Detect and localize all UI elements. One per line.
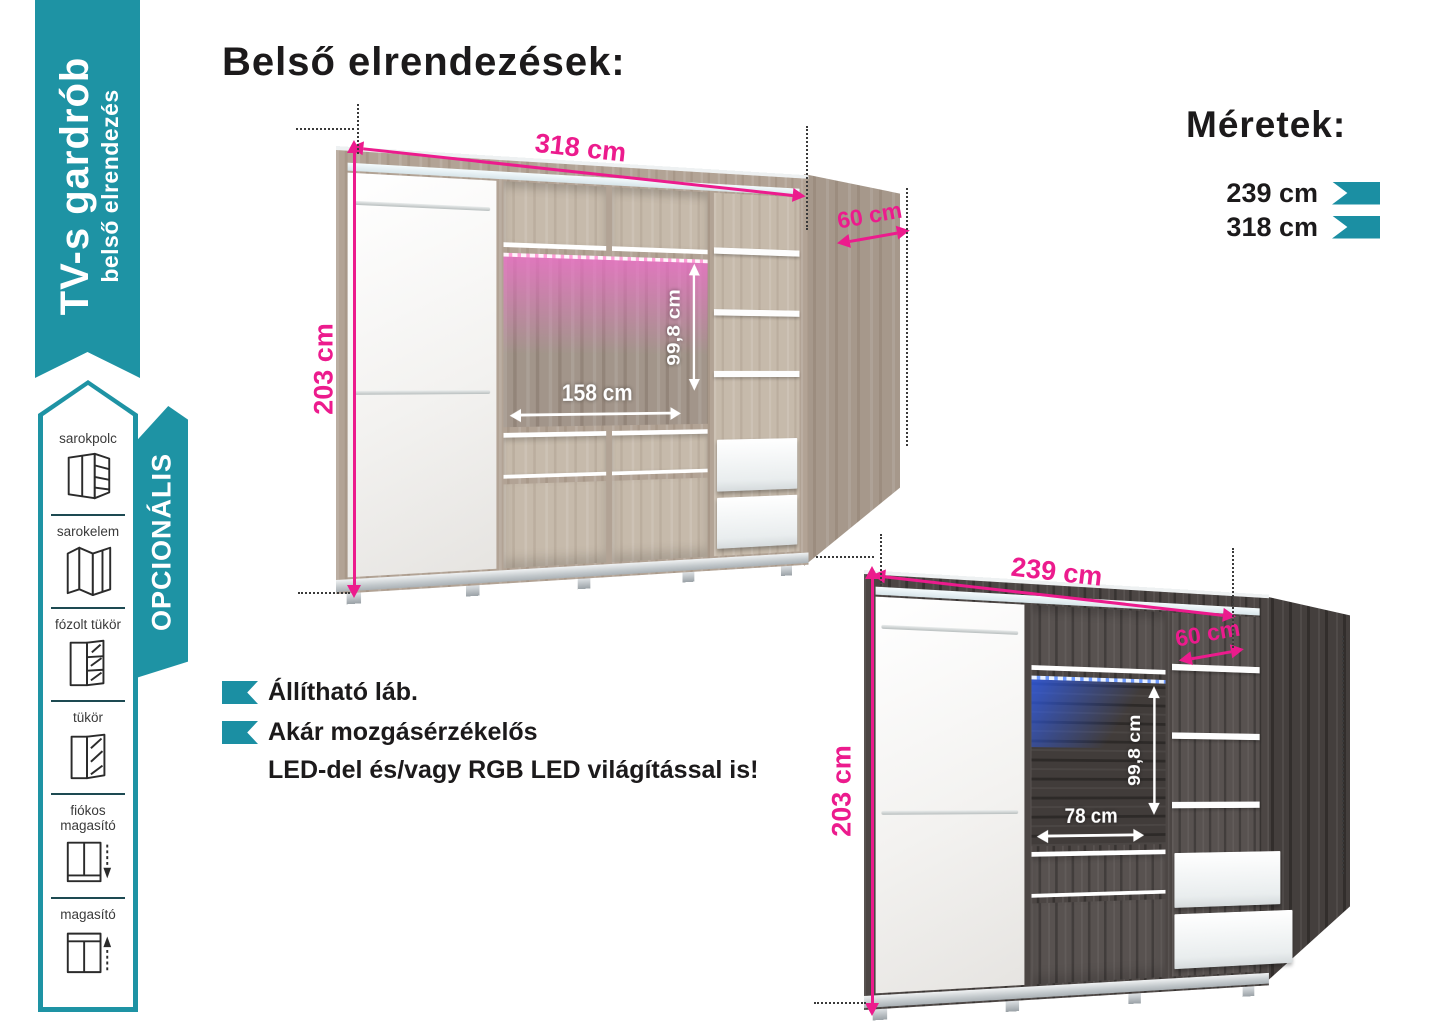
feature-text: Állítható láb. — [268, 678, 418, 707]
dim-tv-height: 99,8 cm — [665, 263, 700, 391]
hanging-rail — [882, 810, 1019, 815]
size-value: 239 cm — [1226, 178, 1318, 209]
wardrobe-239-diagram: 78 cm 99,8 cm — [864, 570, 1342, 1010]
optional-item-label: fózolt tükör — [43, 617, 133, 632]
open-cell — [612, 478, 708, 562]
top-cubbies — [503, 181, 708, 254]
opcionalis-ribbon: OPCIONÁLIS — [136, 406, 188, 678]
optional-item-magasito: magasító — [43, 905, 133, 980]
optional-panel: sarokpolc sarokelem fózolt tükör — [38, 380, 138, 1012]
optional-panel-inner: sarokpolc sarokelem fózolt tükör — [43, 385, 133, 1007]
drawer-open — [1174, 851, 1280, 908]
open-cell — [1031, 899, 1165, 985]
optional-item-label: tükör — [43, 710, 133, 725]
dotted-guide — [1342, 636, 1344, 874]
dotted-guide — [806, 126, 808, 230]
wardrobe-body: 158 cm 99,8 cm — [336, 146, 808, 594]
dim-height-318: 203 cm — [314, 140, 362, 598]
optional-item-fiokos-magasito: fiókos magasító — [43, 801, 133, 891]
dim-tv-width: 158 cm — [510, 380, 681, 423]
shelf-drawer-section — [714, 193, 799, 556]
optional-item-label: magasító — [43, 907, 133, 922]
cubby — [503, 181, 606, 250]
ribbon-subtitle: belső elrendezés — [97, 57, 123, 316]
shelf — [714, 309, 799, 317]
separator — [51, 897, 125, 899]
extension-icon — [59, 924, 117, 976]
dotted-guide — [1232, 548, 1234, 648]
optional-item-sarokelem: sarokelem — [43, 522, 133, 601]
feature-bullet-icon — [222, 721, 258, 744]
hanging-rail — [354, 390, 491, 395]
feature-row: Akár mozgásérzékelős — [222, 718, 538, 747]
dotted-guide — [357, 104, 359, 154]
opcionalis-label: OPCIONÁLIS — [147, 453, 178, 631]
optional-item-fozolt-tukor: fózolt tükör — [43, 615, 133, 694]
dim-height-239: 203 cm — [832, 566, 880, 1016]
cubby — [1031, 605, 1165, 674]
size-row: 318 cm — [1130, 214, 1380, 240]
hanging-section — [348, 173, 497, 578]
separator — [51, 793, 125, 795]
size-value: 318 cm — [1226, 212, 1318, 243]
feature-row: LED-del és/vagy RGB LED világítással is! — [268, 756, 758, 785]
corner-shelf-icon — [59, 448, 117, 504]
tv-section: 78 cm 99,8 cm — [1031, 605, 1165, 985]
open-cell — [503, 481, 606, 568]
optional-item-sarokpolc: sarokpolc — [43, 429, 133, 508]
optional-item-label: sarokpolc — [43, 431, 133, 446]
separator — [51, 514, 125, 516]
page-title: Belső elrendezések: — [222, 40, 626, 85]
mirror-icon — [59, 727, 117, 783]
feature-row: Állítható láb. — [222, 678, 418, 707]
size-flag-icon — [1332, 182, 1380, 205]
tv-back-panel: 158 cm 99,8 cm — [503, 253, 708, 427]
shelf — [1172, 733, 1260, 741]
dotted-guide — [880, 534, 882, 586]
shelf-compartments — [1031, 849, 1165, 897]
dotted-guide — [816, 556, 874, 558]
left-ribbon: TV-s gardrób belső elrendezés — [35, 0, 140, 378]
dotted-guide — [296, 128, 354, 130]
optional-item-label: sarokelem — [43, 524, 133, 539]
size-row: 239 cm — [1130, 180, 1380, 206]
shelf-slot — [1031, 849, 1165, 897]
separator — [51, 607, 125, 609]
shelf — [1172, 802, 1260, 809]
feature-text: LED-del és/vagy RGB LED világítással is! — [268, 756, 758, 785]
size-flag-icon — [1332, 216, 1380, 239]
drawer-stack — [717, 438, 797, 549]
open-compartments — [503, 478, 708, 568]
dotted-guide — [814, 1002, 866, 1004]
drawer-extension-icon — [59, 835, 117, 887]
tv-section: 158 cm 99,8 cm — [503, 181, 708, 568]
ribbon-text: TV-s gardrób belső elrendezés — [53, 57, 123, 316]
hanging-rail — [882, 625, 1019, 635]
cubby — [612, 187, 708, 254]
tv-back-panel: 78 cm 99,8 cm — [1031, 675, 1165, 846]
open-compartments — [1031, 899, 1165, 985]
shelf-slot — [612, 429, 708, 476]
shelf-compartments — [503, 429, 708, 479]
corner-element-icon — [59, 541, 117, 597]
hanging-rail — [354, 201, 491, 211]
drawer — [717, 438, 797, 491]
drawer — [717, 494, 797, 549]
feature-bullet-icon — [222, 681, 258, 704]
optional-item-label: fiókos magasító — [43, 803, 133, 833]
shelf — [714, 247, 799, 256]
separator — [51, 700, 125, 702]
shelf-slot — [503, 431, 606, 479]
feature-text: Akár mozgásérzékelős — [268, 718, 538, 747]
dotted-guide — [298, 592, 350, 594]
bevelled-mirror-icon — [59, 634, 117, 690]
optional-item-tukor: tükör — [43, 708, 133, 787]
dim-tv-height: 99,8 cm — [1128, 685, 1163, 814]
drawer-stack — [1174, 851, 1257, 969]
drawer-open — [1174, 910, 1292, 969]
wardrobe-318-diagram: 158 cm 99,8 cm — [336, 146, 901, 594]
shelf — [714, 371, 799, 377]
ribbon-title: TV-s gardrób — [53, 57, 97, 316]
hanging-section — [876, 597, 1024, 994]
sizes-heading: Méretek: — [1186, 104, 1346, 146]
dotted-guide — [906, 188, 908, 446]
top-cubbies — [1031, 605, 1165, 674]
catalog-page: TV-s gardrób belső elrendezés sarokpolc … — [0, 0, 1445, 1021]
